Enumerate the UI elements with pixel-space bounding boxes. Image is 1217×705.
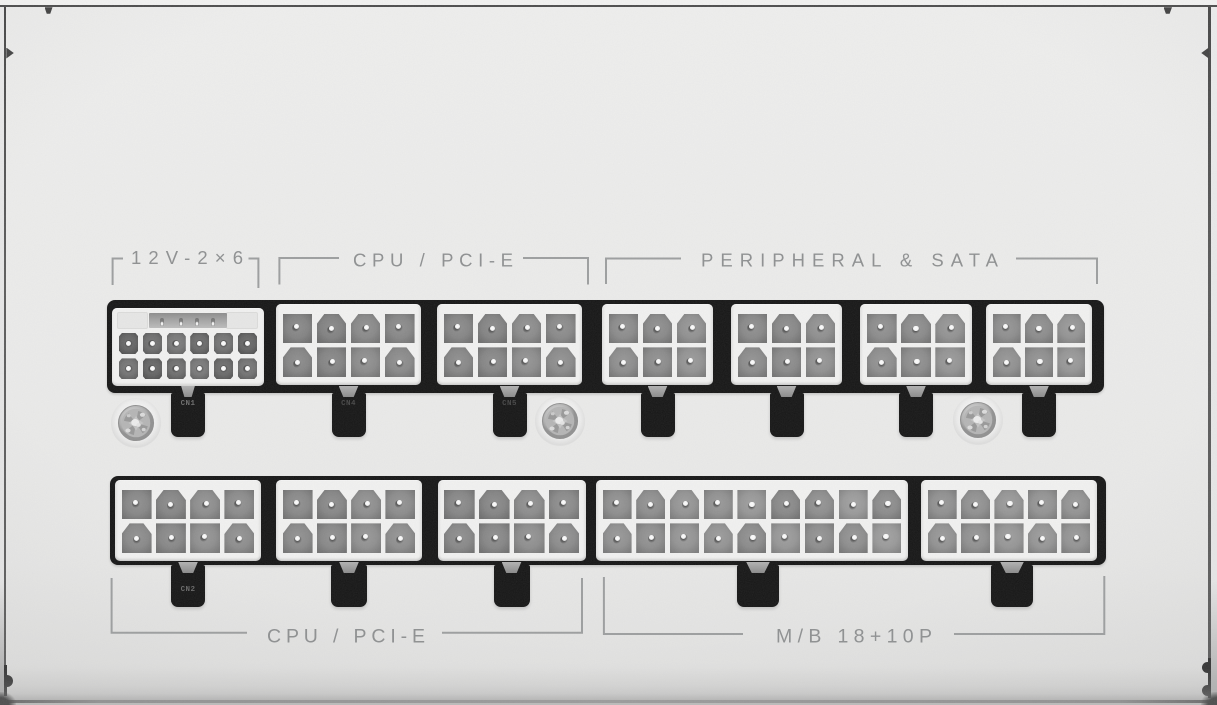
svg-text:PERIPHERAL & SATA: PERIPHERAL & SATA bbox=[701, 250, 999, 271]
svg-text:12V-2×6: 12V-2×6 bbox=[131, 247, 243, 268]
svg-text:CPU / PCI-E: CPU / PCI-E bbox=[267, 626, 425, 648]
svg-text:M/B 18+10P: M/B 18+10P bbox=[776, 626, 932, 648]
svg-text:CPU / PCI-E: CPU / PCI-E bbox=[353, 250, 513, 271]
